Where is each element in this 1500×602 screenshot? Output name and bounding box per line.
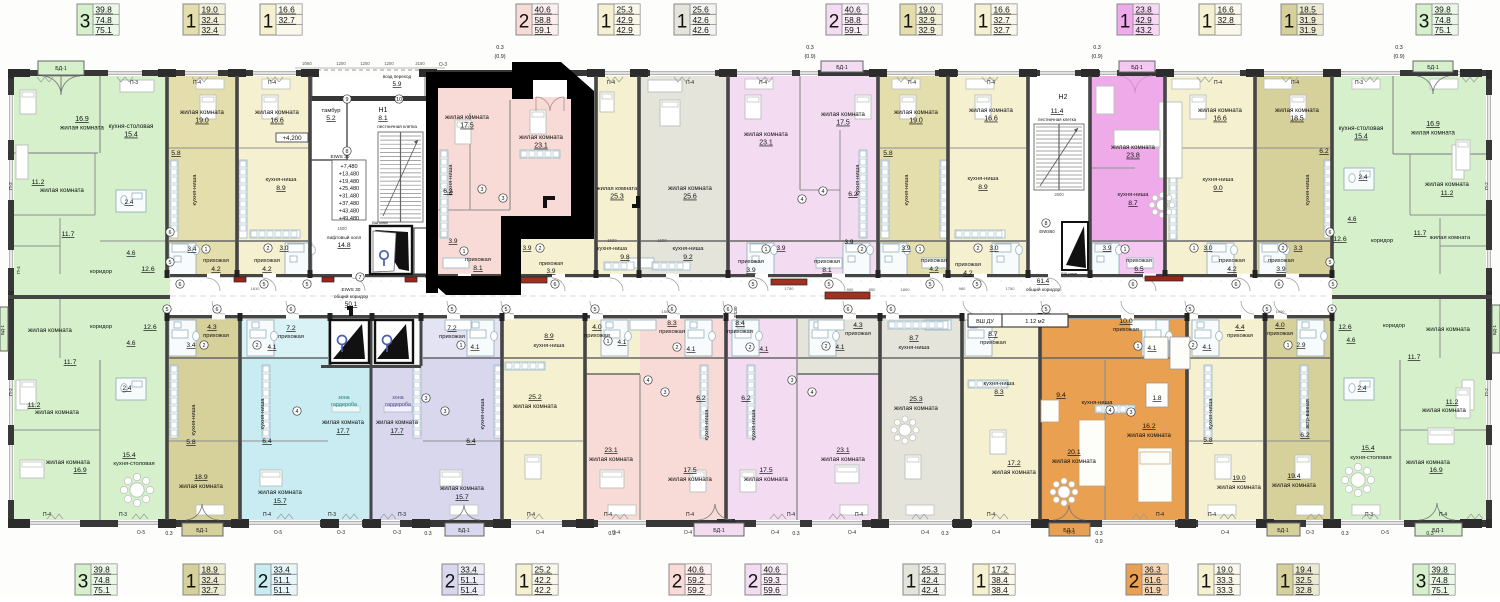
svg-text:+31,480: +31,480 — [339, 194, 359, 200]
svg-text:6: 6 — [290, 307, 293, 313]
svg-text:5: 5 — [929, 282, 932, 288]
svg-text:1: 1 — [765, 247, 768, 253]
svg-text:42.9: 42.9 — [1136, 15, 1153, 25]
svg-text:0.3: 0.3 — [608, 531, 615, 537]
svg-text:прихожая: прихожая — [439, 334, 465, 340]
svg-text:П-4: П-4 — [607, 80, 615, 86]
svg-text:11.4: 11.4 — [1051, 108, 1064, 115]
svg-text:14.8: 14.8 — [337, 242, 350, 249]
svg-text:61.6: 61.6 — [1145, 575, 1162, 585]
svg-text:2: 2 — [676, 345, 679, 351]
svg-text:кухня-ниша: кухня-ниша — [899, 345, 931, 351]
svg-text:2.4: 2.4 — [123, 385, 132, 392]
svg-text:15.4: 15.4 — [1354, 134, 1368, 141]
svg-text:6.4: 6.4 — [262, 438, 272, 445]
svg-text:5.8: 5.8 — [1203, 437, 1213, 444]
svg-text:кухня-столовая: кухня-столовая — [109, 123, 154, 130]
svg-text:25.3: 25.3 — [610, 194, 624, 201]
svg-text:1500: 1500 — [337, 226, 347, 231]
svg-text:2.9: 2.9 — [1297, 342, 1306, 349]
svg-text:О-4: О-4 — [771, 530, 780, 536]
svg-text:2: 2 — [267, 246, 270, 252]
svg-text:32.7: 32.7 — [202, 585, 219, 595]
svg-text:7.2: 7.2 — [447, 325, 457, 332]
svg-text:16.9: 16.9 — [75, 116, 89, 123]
svg-text:(0.9): (0.9) — [1091, 54, 1102, 60]
svg-text:5: 5 — [976, 282, 979, 288]
svg-text:8.4: 8.4 — [735, 320, 745, 327]
svg-text:5: 5 — [505, 307, 508, 313]
svg-text:жилая комната: жилая комната — [744, 131, 788, 138]
svg-text:5.8: 5.8 — [186, 439, 196, 446]
svg-text:жилая комната: жилая комната — [60, 125, 104, 132]
svg-text:прихожая: прихожая — [1113, 327, 1139, 333]
svg-text:БД-1: БД-1 — [1277, 528, 1289, 534]
svg-text:+43,480: +43,480 — [339, 208, 359, 214]
svg-text:прихожая: прихожая — [955, 262, 981, 268]
svg-text:11.7: 11.7 — [1408, 354, 1421, 361]
svg-text:0.3: 0.3 — [941, 531, 948, 537]
svg-text:8.1: 8.1 — [378, 115, 388, 122]
svg-text:4.4: 4.4 — [1235, 324, 1245, 331]
svg-text:75.1: 75.1 — [94, 585, 111, 595]
svg-text:10.0: 10.0 — [1119, 318, 1132, 325]
svg-text:17.5: 17.5 — [683, 467, 696, 474]
svg-text:О-5: О-5 — [1381, 530, 1390, 536]
svg-text:58.8: 58.8 — [845, 15, 862, 25]
svg-text:19.0: 19.0 — [1217, 565, 1234, 575]
svg-text:2: 2 — [977, 246, 980, 252]
svg-text:П-4: П-4 — [908, 80, 916, 86]
svg-text:7: 7 — [359, 275, 362, 281]
svg-text:3.9: 3.9 — [449, 238, 458, 245]
svg-text:25.2: 25.2 — [528, 394, 541, 401]
svg-text:2: 2 — [519, 12, 530, 33]
svg-text:жилая комната: жилая комната — [28, 327, 72, 334]
svg-text:1: 1 — [186, 572, 197, 593]
svg-text:5: 5 — [1189, 307, 1192, 313]
svg-text:О-3: О-3 — [393, 530, 402, 536]
svg-text:кухня-ниша: кухня-ниша — [260, 398, 266, 430]
svg-text:кухня-столовая: кухня-столовая — [1339, 125, 1384, 132]
svg-text:6: 6 — [727, 307, 730, 313]
svg-text:кухня-ниша: кухня-ниша — [968, 176, 1000, 182]
svg-text:1200: 1200 — [336, 61, 346, 66]
svg-text:8.7: 8.7 — [988, 331, 998, 338]
svg-text:4.1: 4.1 — [618, 339, 627, 346]
svg-text:19.4: 19.4 — [1287, 473, 1300, 480]
svg-text:16.6: 16.6 — [984, 116, 998, 123]
svg-text:5: 5 — [166, 307, 169, 313]
svg-text:П-4: П-4 — [1156, 512, 1164, 518]
svg-text:6: 6 — [890, 307, 893, 313]
svg-text:31.9: 31.9 — [1300, 25, 1317, 35]
svg-text:42.4: 42.4 — [922, 575, 939, 585]
svg-text:25.6: 25.6 — [683, 194, 697, 201]
svg-text:4.0: 4.0 — [1275, 322, 1285, 329]
svg-text:жилая комната: жилая комната — [1411, 130, 1455, 137]
svg-text:П-4: П-4 — [855, 512, 863, 518]
svg-text:42.2: 42.2 — [535, 575, 552, 585]
svg-text:3.0: 3.0 — [280, 245, 289, 252]
svg-text:32.9: 32.9 — [919, 25, 936, 35]
svg-text:1500: 1500 — [662, 309, 672, 314]
svg-text:0.3: 0.3 — [1395, 45, 1403, 51]
svg-text:3.9: 3.9 — [547, 268, 556, 275]
svg-text:жилая комната: жилая комната — [1198, 107, 1242, 114]
svg-text:жилая комната: жилая комната — [821, 456, 865, 463]
svg-text:прихожая: прихожая — [845, 331, 871, 337]
svg-text:1: 1 — [460, 343, 463, 349]
svg-text:4.2: 4.2 — [963, 270, 973, 277]
svg-text:жилая комната: жилая комната — [179, 483, 223, 490]
svg-text:10: 10 — [396, 97, 402, 103]
svg-text:4: 4 — [647, 378, 650, 384]
svg-text:жилая комната: жилая комната — [445, 114, 489, 121]
svg-text:15.7: 15.7 — [273, 498, 286, 505]
svg-text:жилая комната: жилая комната — [969, 107, 1013, 114]
svg-text:4: 4 — [801, 197, 804, 203]
svg-text:0.3: 0.3 — [1095, 531, 1102, 537]
svg-text:51.1: 51.1 — [274, 585, 291, 595]
svg-text:6: 6 — [1235, 282, 1238, 288]
svg-text:5: 5 — [752, 282, 755, 288]
svg-text:6.2: 6.2 — [1300, 432, 1310, 439]
svg-text:5: 5 — [1329, 260, 1332, 266]
svg-text:4: 4 — [1109, 408, 1112, 414]
svg-text:0.3: 0.3 — [1426, 531, 1433, 537]
svg-text:1: 1 — [978, 12, 989, 33]
svg-text:2: 2 — [749, 345, 752, 351]
svg-text:0.3: 0.3 — [1341, 531, 1348, 537]
svg-text:общий коридор: общий коридор — [334, 293, 369, 300]
svg-text:11.2: 11.2 — [1446, 399, 1459, 406]
svg-text:3.3: 3.3 — [1294, 245, 1303, 252]
svg-text:25.2: 25.2 — [535, 565, 552, 575]
svg-text:4.6: 4.6 — [1347, 337, 1356, 344]
svg-text:1810: 1810 — [251, 286, 261, 291]
svg-text:3: 3 — [791, 378, 794, 384]
svg-text:ВШ комп: ВШ комп — [1061, 272, 1077, 276]
svg-text:8.3: 8.3 — [667, 320, 677, 327]
svg-text:прихожая: прихожая — [659, 329, 685, 335]
svg-text:5: 5 — [1045, 307, 1048, 313]
svg-text:жилая комната: жилая комната — [1052, 458, 1096, 465]
svg-text:3: 3 — [78, 572, 89, 593]
svg-text:кухня-ниша: кухня-ниша — [1305, 174, 1311, 206]
svg-text:58.8: 58.8 — [535, 15, 552, 25]
svg-text:EIWS 30: EIWS 30 — [342, 287, 361, 293]
svg-text:О-5: О-5 — [1067, 530, 1076, 536]
svg-text:П-4: П-4 — [686, 512, 694, 518]
svg-text:2: 2 — [1282, 246, 1285, 252]
svg-text:33.3: 33.3 — [1217, 575, 1234, 585]
svg-text:11.7: 11.7 — [64, 359, 77, 366]
svg-text:4: 4 — [296, 409, 299, 415]
svg-text:11.7: 11.7 — [1414, 230, 1427, 237]
svg-text:3.9: 3.9 — [1276, 266, 1286, 273]
svg-text:прихожая: прихожая — [203, 333, 229, 339]
svg-text:жилая комната: жилая комната — [519, 134, 563, 141]
svg-text:кухня-ниша: кухня-ниша — [984, 381, 1016, 387]
svg-text:19.0: 19.0 — [195, 118, 209, 125]
svg-text:П-4: П-4 — [16, 266, 22, 274]
svg-text:лифтовый холл: лифтовый холл — [327, 234, 362, 241]
svg-text:жилая комната: жилая комната — [992, 469, 1036, 476]
svg-text:2: 2 — [829, 12, 840, 33]
svg-text:3: 3 — [425, 396, 428, 402]
svg-text:5: 5 — [828, 282, 831, 288]
svg-text:38.4: 38.4 — [992, 575, 1009, 585]
svg-text:2.4: 2.4 — [1359, 174, 1368, 181]
svg-text:3.9: 3.9 — [523, 245, 532, 252]
svg-text:17.2: 17.2 — [1007, 460, 1020, 467]
svg-text:1: 1 — [1120, 12, 1131, 33]
svg-text:4.6: 4.6 — [1348, 216, 1357, 223]
svg-text:О-4: О-4 — [992, 530, 1001, 536]
svg-text:32.8: 32.8 — [1296, 585, 1313, 595]
svg-text:кухня-ниша: кухня-ниша — [673, 246, 705, 252]
svg-text:1.8: 1.8 — [1153, 395, 1162, 402]
svg-text:6.2: 6.2 — [443, 188, 453, 195]
svg-text:9.2: 9.2 — [683, 254, 693, 261]
svg-text:П-4: П-4 — [263, 512, 271, 518]
svg-text:1: 1 — [1280, 572, 1291, 593]
svg-text:3.9: 3.9 — [902, 245, 911, 252]
svg-text:32.9: 32.9 — [919, 15, 936, 25]
svg-text:прихожая: прихожая — [278, 334, 304, 340]
svg-text:H1: H1 — [379, 107, 388, 114]
svg-text:42.6: 42.6 — [693, 15, 710, 25]
svg-text:жилая комната: жилая комната — [589, 456, 633, 463]
svg-text:жилая комната: жилая комната — [440, 485, 484, 492]
svg-text:1200: 1200 — [360, 61, 370, 66]
svg-text:2: 2 — [1192, 343, 1195, 349]
svg-text:жилая комната: жилая комната — [744, 476, 788, 483]
svg-text:61.4: 61.4 — [1037, 278, 1050, 285]
svg-text:жилая комната: жилая комната — [1406, 459, 1450, 466]
svg-text:75.1: 75.1 — [96, 25, 113, 35]
svg-text:1: 1 — [677, 12, 688, 33]
svg-text:23.1: 23.1 — [836, 447, 849, 454]
svg-text:5: 5 — [1266, 307, 1269, 313]
svg-text:жилая комната: жилая комната — [1111, 144, 1155, 151]
svg-text:51.1: 51.1 — [461, 575, 478, 585]
svg-text:850: 850 — [869, 287, 876, 292]
svg-text:прихожая: прихожая — [203, 258, 229, 264]
svg-text:6.5: 6.5 — [1134, 266, 1144, 273]
svg-text:75.1: 75.1 — [1432, 585, 1449, 595]
svg-text:4.1: 4.1 — [836, 344, 845, 351]
svg-text:4.1: 4.1 — [1203, 344, 1212, 351]
svg-text:+19,480: +19,480 — [339, 179, 359, 185]
svg-text:0.3: 0.3 — [806, 45, 814, 51]
svg-text:11.2: 11.2 — [28, 402, 41, 409]
svg-text:прихожая: прихожая — [814, 259, 840, 265]
svg-text:жилая комната: жилая комната — [1272, 482, 1316, 489]
svg-text:39.8: 39.8 — [94, 565, 111, 575]
svg-text:3: 3 — [502, 196, 505, 202]
svg-text:32.7: 32.7 — [994, 25, 1011, 35]
svg-text:общий коридор: общий коридор — [1026, 286, 1061, 293]
svg-text:коридор: коридор — [90, 269, 112, 275]
svg-text:39.8: 39.8 — [1435, 5, 1452, 15]
svg-text:9: 9 — [346, 97, 349, 103]
svg-text:жилая комната: жилая комната — [46, 459, 90, 466]
svg-text:3.9: 3.9 — [746, 267, 756, 274]
svg-text:жилая комната: жилая комната — [513, 403, 557, 410]
svg-text:31.9: 31.9 — [1300, 15, 1317, 25]
svg-text:16.6: 16.6 — [994, 5, 1011, 15]
svg-text:4: 4 — [822, 189, 825, 195]
svg-text:БД-1: БД-1 — [55, 66, 67, 72]
svg-text:2: 2 — [1129, 572, 1140, 593]
svg-text:42.2: 42.2 — [535, 585, 552, 595]
svg-text:4.1: 4.1 — [687, 346, 696, 353]
svg-text:11.7: 11.7 — [62, 231, 75, 238]
svg-text:12.6: 12.6 — [141, 266, 154, 273]
svg-text:3: 3 — [80, 12, 91, 33]
svg-text:51.4: 51.4 — [461, 585, 478, 595]
svg-text:12.6: 12.6 — [143, 324, 156, 331]
svg-text:32.4: 32.4 — [202, 25, 219, 35]
svg-text:кухня-столовая: кухня-столовая — [113, 461, 154, 467]
svg-text:4.2: 4.2 — [1227, 266, 1237, 273]
svg-text:жилая комната: жилая комната — [1422, 407, 1466, 414]
svg-text:кухня-ниша: кухня-ниша — [751, 409, 757, 441]
svg-text:П-3: П-3 — [130, 80, 138, 86]
svg-text:3.4: 3.4 — [188, 246, 197, 253]
svg-text:1: 1 — [1202, 12, 1213, 33]
svg-text:75.1: 75.1 — [1435, 25, 1452, 35]
svg-text:прихожая: прихожая — [1219, 258, 1245, 264]
svg-text:1750: 1750 — [1006, 286, 1016, 291]
svg-text:6.2: 6.2 — [741, 395, 751, 402]
svg-text:0.3: 0.3 — [424, 531, 431, 537]
svg-text:прихожая: прихожая — [254, 258, 280, 264]
svg-text:50.1: 50.1 — [345, 301, 358, 308]
svg-text:8.7: 8.7 — [909, 335, 919, 342]
svg-text:15.4: 15.4 — [124, 132, 138, 139]
svg-text:БД-1: БД-1 — [1131, 65, 1143, 71]
svg-text:зона: зона — [338, 395, 349, 401]
svg-text:33.3: 33.3 — [1217, 585, 1234, 595]
svg-text:1: 1 — [186, 12, 197, 33]
svg-text:40.6: 40.6 — [845, 5, 862, 15]
svg-text:1: 1 — [1284, 12, 1295, 33]
svg-text:О-5: О-5 — [274, 530, 283, 536]
svg-text:тамбур: тамбур — [322, 108, 341, 114]
svg-text:П-4: П-4 — [1208, 512, 1216, 518]
svg-text:1: 1 — [906, 572, 917, 593]
svg-text:жилая комната: жилая комната — [1275, 107, 1319, 114]
svg-text:17.7: 17.7 — [336, 428, 349, 435]
svg-text:1500: 1500 — [607, 238, 617, 243]
svg-text:6: 6 — [554, 282, 557, 288]
svg-text:59.2: 59.2 — [688, 585, 705, 595]
svg-text:6.2: 6.2 — [848, 191, 858, 198]
svg-text:74.8: 74.8 — [1432, 575, 1449, 585]
svg-text:1: 1 — [1201, 572, 1212, 593]
svg-text:О-5: О-5 — [137, 530, 146, 536]
svg-text:прихожая: прихожая — [1126, 258, 1152, 264]
svg-text:жилая комната: жилая комната — [1217, 484, 1261, 491]
svg-text:4.1: 4.1 — [1148, 345, 1157, 352]
svg-text:18.5: 18.5 — [1300, 5, 1317, 15]
svg-text:жилая комната: жилая комната — [894, 405, 938, 412]
svg-text:18.9: 18.9 — [202, 565, 219, 575]
svg-text:жилая комната: жилая комната — [597, 186, 638, 192]
svg-text:59.1: 59.1 — [535, 25, 552, 35]
svg-text:16.6: 16.6 — [1213, 116, 1227, 123]
svg-text:32.7: 32.7 — [279, 15, 296, 25]
svg-text:кухня-ниша: кухня-ниша — [904, 174, 910, 206]
svg-text:4.1: 4.1 — [760, 346, 769, 353]
svg-text:33.4: 33.4 — [274, 565, 291, 575]
svg-text:40.6: 40.6 — [688, 565, 705, 575]
svg-text:5: 5 — [169, 260, 172, 266]
svg-text:17.5: 17.5 — [759, 467, 772, 474]
svg-text:9.0: 9.0 — [1213, 185, 1223, 192]
svg-text:1: 1 — [1124, 247, 1127, 253]
svg-text:5.8: 5.8 — [883, 150, 893, 157]
svg-text:БД-1: БД-1 — [1492, 324, 1497, 335]
svg-text:59.2: 59.2 — [688, 575, 705, 585]
svg-text:1: 1 — [263, 12, 274, 33]
svg-text:8.1: 8.1 — [822, 267, 832, 274]
svg-text:П-3: П-3 — [119, 512, 127, 518]
svg-text:жилая комната: жилая комната — [821, 111, 865, 118]
svg-text:17.2: 17.2 — [992, 565, 1009, 575]
svg-text:лестничная клетка: лестничная клетка — [377, 124, 417, 129]
svg-text:жилая комната: жилая комната — [376, 420, 418, 426]
svg-text:1: 1 — [903, 12, 914, 33]
svg-text:32.8: 32.8 — [1218, 15, 1235, 25]
svg-text:жилая комната: жилая комната — [1430, 235, 1471, 241]
svg-text:прихожая: прихожая — [539, 261, 563, 267]
svg-text:5.8: 5.8 — [171, 150, 181, 157]
svg-text:8: 8 — [1045, 221, 1048, 227]
svg-text:жилая комната: жилая комната — [668, 185, 712, 192]
svg-text:0.3: 0.3 — [1093, 45, 1101, 51]
svg-text:5: 5 — [263, 282, 266, 288]
svg-text:19.0: 19.0 — [202, 5, 219, 15]
svg-text:23.1: 23.1 — [534, 143, 548, 150]
svg-text:прихожая: прихожая — [980, 340, 1006, 346]
svg-text:4.1: 4.1 — [268, 344, 277, 351]
svg-text:17.7: 17.7 — [390, 428, 403, 435]
svg-text:5: 5 — [451, 307, 454, 313]
svg-text:кухня-ниша: кухня-ниша — [597, 246, 628, 252]
svg-text:18.9: 18.9 — [194, 474, 207, 481]
svg-text:кухня-ниша: кухня-ниша — [1203, 177, 1235, 183]
svg-text:1200: 1200 — [384, 61, 394, 66]
svg-text:39.8: 39.8 — [96, 5, 113, 15]
svg-text:23.1: 23.1 — [604, 447, 617, 454]
svg-text:прихожая: прихожая — [738, 259, 764, 265]
svg-text:1: 1 — [1193, 246, 1196, 252]
svg-text:П-2: П-2 — [8, 388, 14, 396]
svg-text:0.9: 0.9 — [1095, 539, 1102, 545]
svg-text:+7,480: +7,480 — [340, 164, 357, 170]
svg-text:прихожая: прихожая — [1227, 333, 1253, 339]
svg-text:кухня-ниша: кухня-ниша — [266, 177, 298, 183]
svg-text:36.3: 36.3 — [1145, 565, 1162, 575]
svg-text:1: 1 — [601, 12, 612, 33]
svg-text:П-4: П-4 — [1439, 512, 1447, 518]
svg-text:3: 3 — [1419, 12, 1430, 33]
svg-text:3: 3 — [1130, 410, 1133, 416]
